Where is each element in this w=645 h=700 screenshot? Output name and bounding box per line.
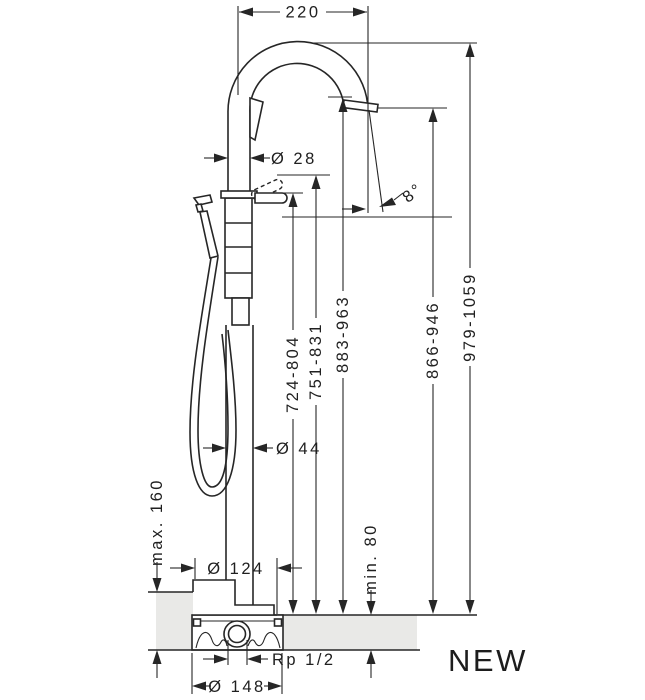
label-height-outlet: 866-946 [424, 301, 442, 379]
label-spout-reach: 220 [285, 4, 320, 22]
dim-column-diameter: Ø 44 [203, 440, 322, 458]
mixer-body [221, 191, 257, 325]
label-spray-angle: 8° [399, 180, 426, 207]
label-install-depth-min: min. 80 [362, 523, 380, 595]
dim-height-total: 979-1059 [461, 43, 479, 614]
concealed-installation-unit [192, 615, 283, 650]
technical-drawing-canvas: 220 Ø 28 8° 724-804 751-831 883-963 [0, 0, 645, 700]
label-install-depth-max: max. 160 [148, 478, 166, 566]
label-spout-diameter: Ø 28 [271, 150, 317, 168]
spout-outlet-face [343, 100, 378, 112]
label-height-total: 979-1059 [461, 272, 479, 362]
extension-lines [277, 43, 477, 217]
label-height-lever: 724-804 [284, 335, 302, 413]
spout-internal-guide [250, 98, 263, 140]
dim-height-spout-top: 883-963 [334, 98, 352, 614]
dim-spray-angle: 8° [342, 110, 427, 214]
label-escutcheon-diameter: Ø 124 [207, 560, 264, 578]
body-connector [232, 298, 249, 325]
label-column-diameter: Ø 44 [276, 440, 322, 458]
hand-shower-holder [194, 195, 212, 212]
floor-right [277, 615, 477, 650]
dim-spout-diameter: Ø 28 [204, 150, 317, 168]
floor-left [148, 592, 193, 650]
faucet-dimension-drawing: 220 Ø 28 8° 724-804 751-831 883-963 [0, 0, 645, 700]
label-height-spout-top: 883-963 [334, 295, 352, 373]
dim-height-lever: 724-804 [284, 193, 302, 614]
new-badge: NEW [448, 643, 528, 678]
dim-install-depth-min: min. 80 [362, 523, 380, 678]
label-flange-diameter: Ø 148 [208, 678, 265, 696]
spout-and-riser [228, 42, 378, 191]
label-height-lever-raised: 751-831 [307, 322, 325, 400]
hand-shower [200, 211, 218, 258]
dim-height-lever-raised: 751-831 [307, 175, 325, 614]
inlet-pipe-inner [229, 626, 246, 643]
spout-inner-arc [250, 63, 344, 191]
dim-height-outlet: 866-946 [424, 108, 442, 614]
lever-handle [255, 193, 287, 203]
base-escutcheon [193, 580, 277, 615]
